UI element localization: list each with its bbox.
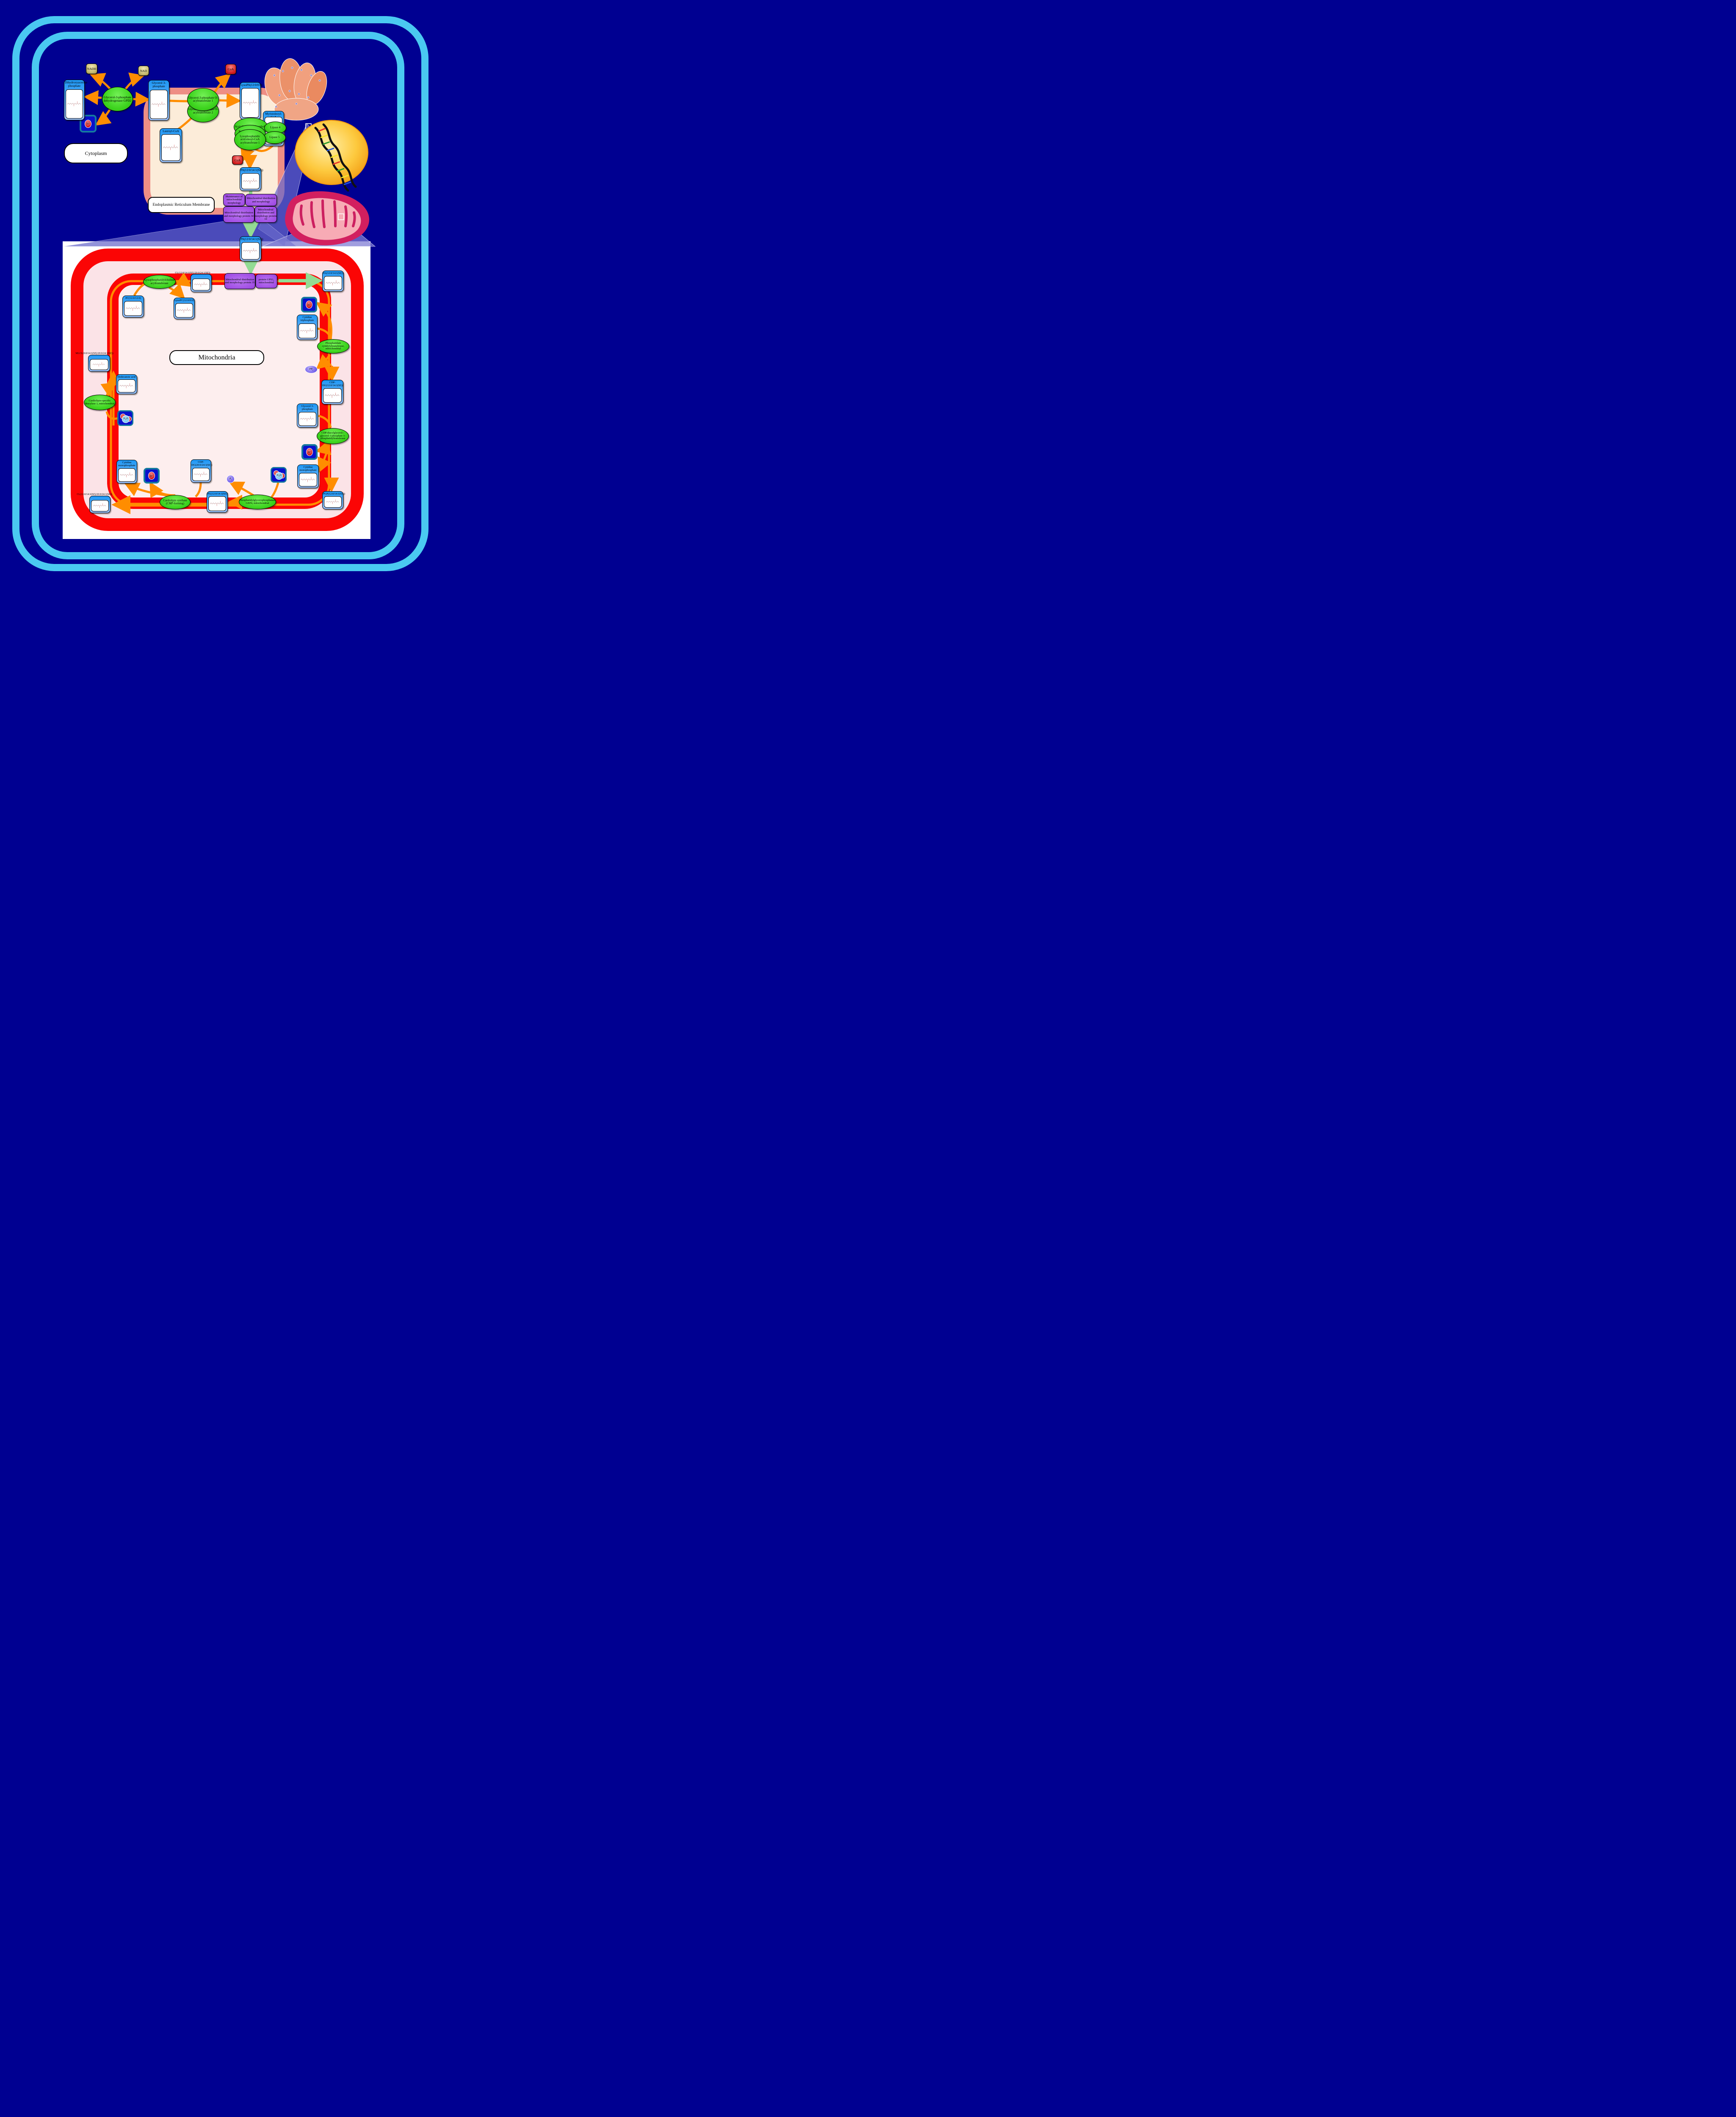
node-cdp-dg-1[interactable]: CDP-DG(12:0/14:1(9Z)) xyxy=(321,380,343,404)
node-pa-er[interactable]: PA(12:0/14:1(9Z)) xyxy=(240,167,261,191)
node-mlcl-title: MLCL(0:0/14:1(9Z)/20:0/24:1(9Z)) xyxy=(63,352,126,355)
h2o-node-left[interactable]: H2O xyxy=(117,410,133,426)
node-pa-inner-membrane[interactable]: PA(12:0/14:1(9Z)) xyxy=(322,271,344,292)
mitochondrion-illustration xyxy=(285,191,369,246)
node-cl-top-title: CL(12:0/14:1(9Z)/20:0/24:1(9Z)) xyxy=(163,271,222,274)
protein-mdm35[interactable]: Mitochondrial distribution and morpholog… xyxy=(224,273,255,289)
node-lysopc[interactable]: LysoPC(12:0/0:0) xyxy=(174,298,195,319)
node-mlcl[interactable] xyxy=(88,355,110,372)
h-plus-node-right-2[interactable]: H+ xyxy=(301,444,318,460)
node-dhap[interactable]: Dihydroxyacetone phosphate xyxy=(64,80,85,120)
coa-node-top[interactable]: CoA xyxy=(225,64,236,75)
cytoplasm-label: Cytoplasm xyxy=(64,143,128,163)
node-pa-outer-membrane[interactable]: PA(12:0/14:1(9Z)) xyxy=(240,236,261,261)
er-membrane-label: Endoplasmic Reticulum Membrane xyxy=(148,197,215,213)
node-lysopa[interactable]: LysoPA(12:0/0:0) xyxy=(240,82,261,119)
enzyme-gpd2[interactable]: Glycerol-3-phosphate dehydrogenase GPD2 xyxy=(102,87,133,111)
node-ctp[interactable]: Cytidine triphosphate xyxy=(297,315,318,340)
protein-ups1[interactable]: protein UPS1, mitochondrial xyxy=(255,274,277,288)
node-cmp-right[interactable]: Cytidine monophosphate xyxy=(297,464,319,488)
enzyme-lipase-5[interactable]: Lipase 5 xyxy=(263,131,286,144)
enzyme-gpat1[interactable]: Glycerol-3-phosphate O-acyltransferase 1 xyxy=(187,88,219,111)
protein-mmm1[interactable]: Maintenance of mitochondrial morphology xyxy=(223,193,245,206)
node-cl-bottom[interactable] xyxy=(89,496,111,513)
protein-mdm34[interactable]: Mitochondrial distribution and morpholog… xyxy=(223,206,254,223)
node-cl-top[interactable] xyxy=(191,274,212,292)
protein-mdm10[interactable]: Mitochondrial distribution and morpholog… xyxy=(254,206,277,223)
node-pc[interactable]: PC(12:0/12:0) xyxy=(122,296,144,318)
mitochondria-label: Mitochondria xyxy=(169,350,264,365)
h-plus-node-right-1[interactable]: H+ xyxy=(301,297,317,312)
node-glycerol-3-phosphate-er[interactable]: Glycerol 3-phosphate xyxy=(148,80,169,121)
node-dodecanoic-acid[interactable]: Dodecanoic acid xyxy=(116,374,137,394)
nadh-node[interactable]: NADH xyxy=(86,64,97,74)
nad-node[interactable]: NAD xyxy=(138,66,149,76)
enzyme-cardiolipin-deacylase-1[interactable]: Cardiolipin-specific deacylase 1, mitoch… xyxy=(84,395,116,410)
h2o-node-bottom[interactable]: H2O xyxy=(271,467,287,483)
node-cl-bottom-title: CL(12:0/14:1(9Z)/20:0/24:1(9Z)) xyxy=(63,493,126,496)
pathway-diagram: Cytoplasm Endoplasmic Reticulum Membrane… xyxy=(0,0,434,603)
enzyme-lpaat1[interactable]: Lysophosphatidic acid:oleoyl-CoA acyltra… xyxy=(234,129,266,150)
enzyme-phosphatidate-cytidylyltransferase[interactable]: Phosphatidate cytidylyltransferase, mito… xyxy=(317,339,349,354)
node-pgp[interactable]: PGP(12:0/14:1(9Z)) xyxy=(322,491,343,509)
coa-node-er[interactable]: CoA xyxy=(232,155,243,165)
protein-mdm[interactable]: Mitochondrial distribution and morpholog… xyxy=(245,194,277,206)
enzyme-cdp-dag-g3p-phosphatidyltransferase[interactable]: CDP-diacylglycerol--glycerol-3-phosphate… xyxy=(317,428,349,444)
h-plus-node-bottom[interactable]: H+ xyxy=(144,468,160,484)
enzyme-gep4[interactable]: Phosphatidylglycerophosphatase GEP4, mit… xyxy=(239,495,276,509)
ppi-node[interactable]: PPi xyxy=(305,365,318,373)
nucleus-illustration xyxy=(295,120,368,191)
node-cmp-left[interactable]: Cytidine monophosphate xyxy=(116,460,137,484)
node-glycerol-3-phosphate-mito[interactable]: Glycerol 3-phosphate xyxy=(297,404,318,428)
enzyme-cardiolipin-synthase[interactable]: Cardiolipin synthase (CMP-forming) xyxy=(160,495,191,509)
node-cdp-dg-2[interactable]: CDP-DG(20:0/24:1(9Z)) xyxy=(191,459,211,483)
node-lauroyl-coa[interactable]: Lauroyl-CoA xyxy=(160,128,182,163)
pi-node[interactable]: Pi xyxy=(227,475,235,483)
enzyme-lpcat[interactable]: Lysophosphatidylcholine acyltransferase xyxy=(143,275,176,289)
node-pg[interactable]: PG(12:0/14:1(9Z)) xyxy=(207,491,228,513)
